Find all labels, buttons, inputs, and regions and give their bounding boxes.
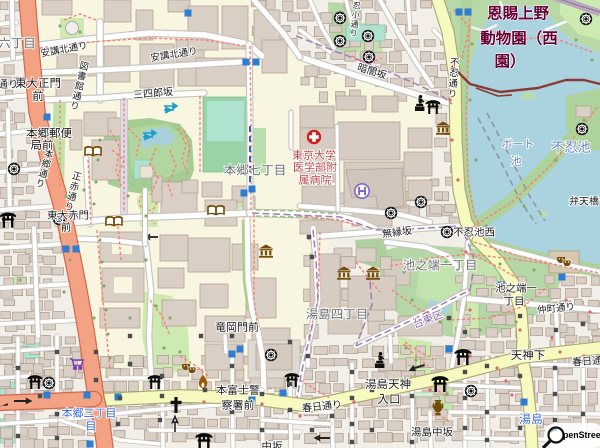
svg-text:penStreetMap: penStreetMap — [563, 430, 600, 440]
